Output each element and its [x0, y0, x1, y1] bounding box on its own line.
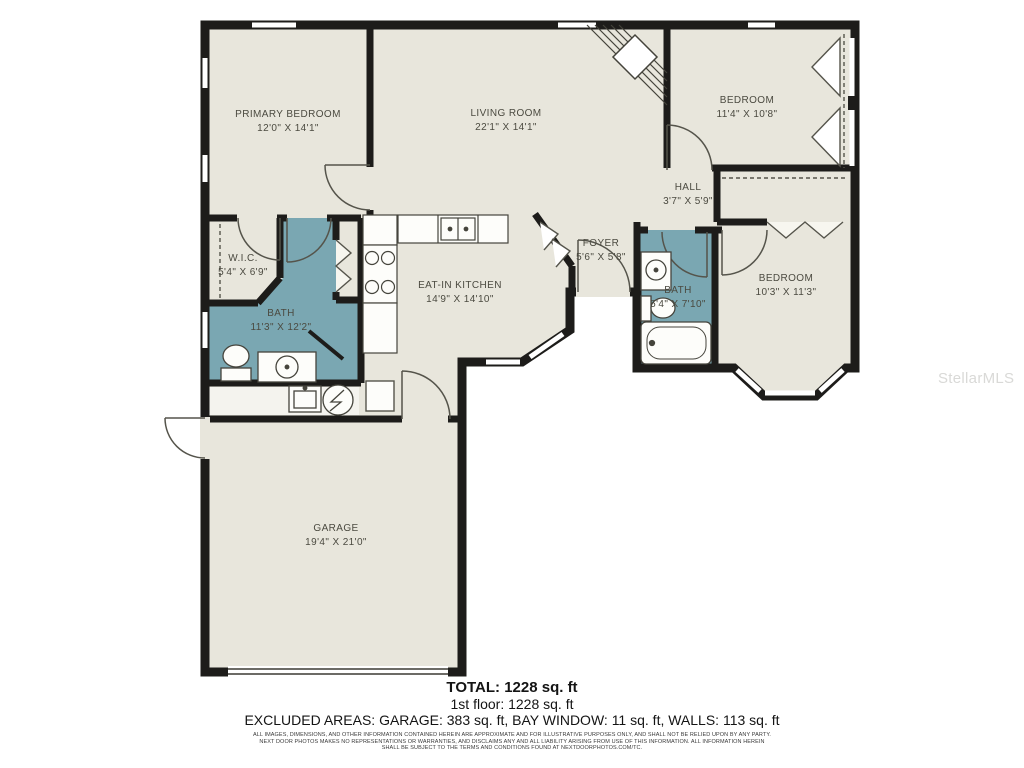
label-bath-main: BATH: [267, 308, 295, 319]
area-summary: TOTAL: 1228 sq. ft 1st floor: 1228 sq. f…: [0, 679, 1024, 752]
dims-kitchen: 14'9" X 14'10": [426, 294, 494, 305]
label-bedroom-top: BEDROOM: [720, 95, 774, 106]
label-hall: HALL: [675, 182, 702, 193]
toilet-tank: [221, 368, 251, 381]
total-area: TOTAL: 1228 sq. ft: [0, 679, 1024, 696]
disclaimer: ALL IMAGES, DIMENSIONS, AND OTHER INFORM…: [0, 732, 1024, 752]
label-bath-hall: BATH: [664, 285, 692, 296]
label-primary-bedroom: PRIMARY BEDROOM: [235, 109, 341, 120]
toilet-bowl: [223, 345, 249, 367]
kitchen-cabinet-bottom: [363, 303, 397, 353]
label-living-room: LIVING ROOM: [470, 108, 541, 119]
watermark: StellarMLS: [938, 370, 1014, 387]
excluded-areas: EXCLUDED AREAS: GARAGE: 383 sq. ft, BAY …: [0, 712, 1024, 728]
dims-garage: 19'4" X 21'0": [305, 537, 367, 548]
dims-wic: 5'4" X 6'9": [218, 267, 268, 278]
label-foyer: FOYER: [583, 238, 619, 249]
dims-hall: 3'7" X 5'9": [663, 196, 713, 207]
water-heater: [323, 385, 353, 415]
label-garage: GARAGE: [313, 523, 358, 534]
label-wic: W.I.C.: [228, 253, 258, 264]
stove: [363, 245, 397, 303]
east-window-mullion: [848, 96, 857, 110]
dims-bedroom-top: 11'4" X 10'8": [717, 109, 778, 120]
dims-primary-bedroom: 12'0" X 14'1": [257, 123, 319, 134]
label-bedroom-right: BEDROOM: [759, 273, 813, 284]
landing-closet: [366, 381, 394, 411]
disclaimer-line-3: SHALL BE SUBJECT TO THE TERMS AND CONDIT…: [0, 745, 1024, 752]
dims-bath-hall: 5'4" X 7'10": [650, 299, 706, 310]
utility-fixtures: [289, 385, 353, 415]
dims-foyer: 5'6" X 5'8": [576, 252, 626, 263]
dims-bath-main: 11'3" X 12'2": [251, 322, 312, 333]
dims-bedroom-right: 10'3" X 11'3": [756, 287, 817, 298]
kitchen-cabinet-top: [363, 215, 397, 245]
dims-living-room: 22'1" X 14'1": [475, 122, 537, 133]
label-kitchen: EAT-IN KITCHEN: [418, 280, 502, 291]
first-floor-area: 1st floor: 1228 sq. ft: [0, 696, 1024, 712]
floorplan-drawing: PRIMARY BEDROOM 12'0" X 14'1" LIVING ROO…: [0, 0, 1024, 768]
floorplan-canvas: PRIMARY BEDROOM 12'0" X 14'1" LIVING ROO…: [0, 0, 1024, 768]
